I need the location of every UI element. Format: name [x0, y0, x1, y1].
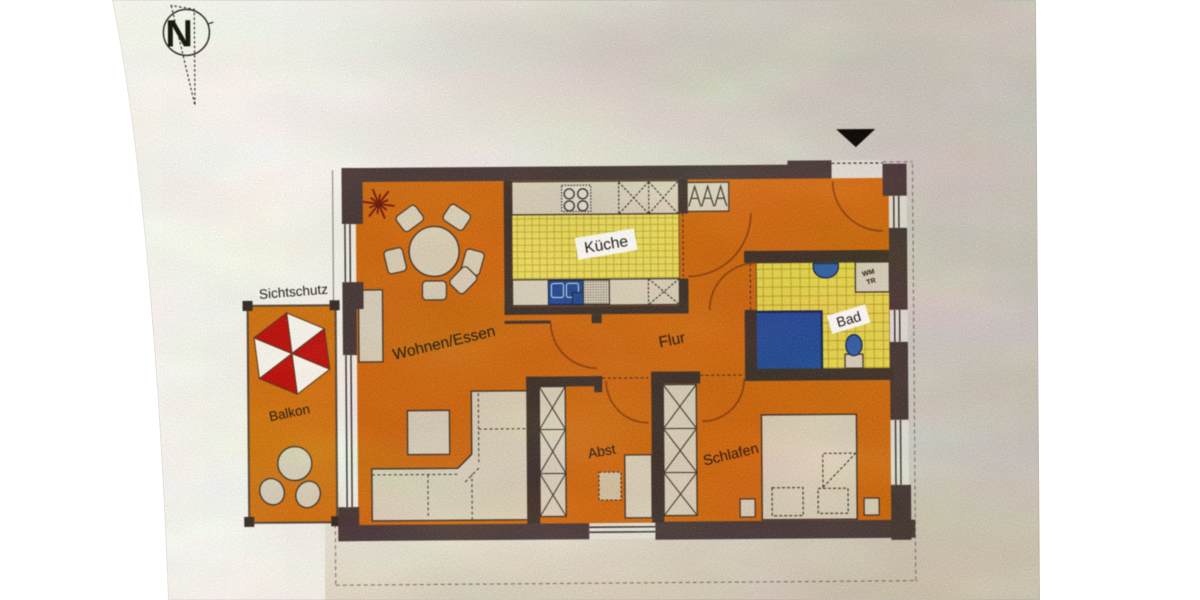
svg-text:N: N — [165, 13, 193, 55]
